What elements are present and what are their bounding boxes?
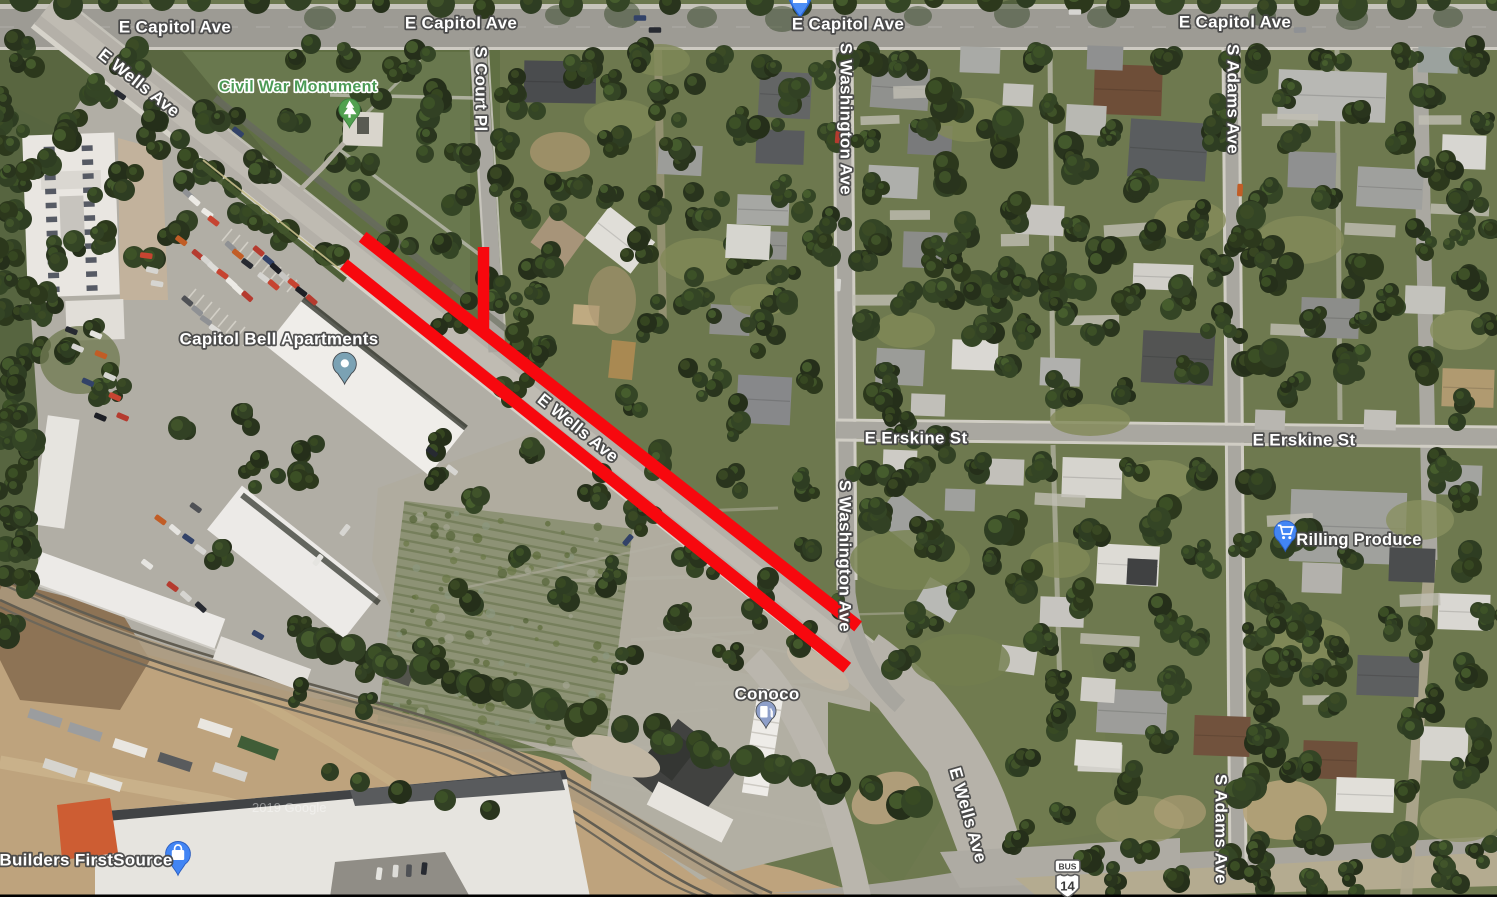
svg-text:E Capitol Ave: E Capitol Ave [405,14,517,33]
svg-text:2019 Google: 2019 Google [252,800,326,815]
svg-text:Capitol Bell Apartments: Capitol Bell Apartments [180,330,379,349]
svg-text:Builders FirstSource: Builders FirstSource [0,851,173,870]
svg-text:E Erskine St: E Erskine St [1253,431,1356,450]
svg-text:S Washington Ave: S Washington Ave [836,480,855,632]
svg-text:S Court Pl: S Court Pl [472,46,491,131]
svg-text:S Adams Ave: S Adams Ave [1212,774,1231,884]
svg-text:S Adams Ave: S Adams Ave [1224,44,1243,154]
svg-text:E Erskine St: E Erskine St [865,429,968,448]
svg-text:E Capitol Ave: E Capitol Ave [1179,13,1291,32]
svg-text:14: 14 [1060,879,1075,894]
svg-text:Civil War Monument: Civil War Monument [219,79,378,96]
svg-text:E Capitol Ave: E Capitol Ave [119,18,231,37]
svg-text:Rilling Produce: Rilling Produce [1296,531,1422,549]
svg-text:E Capitol Ave: E Capitol Ave [792,15,904,34]
svg-text:S Washington Ave: S Washington Ave [837,43,856,195]
svg-text:BUS: BUS [1059,862,1077,872]
svg-text:Conoco: Conoco [734,685,799,704]
